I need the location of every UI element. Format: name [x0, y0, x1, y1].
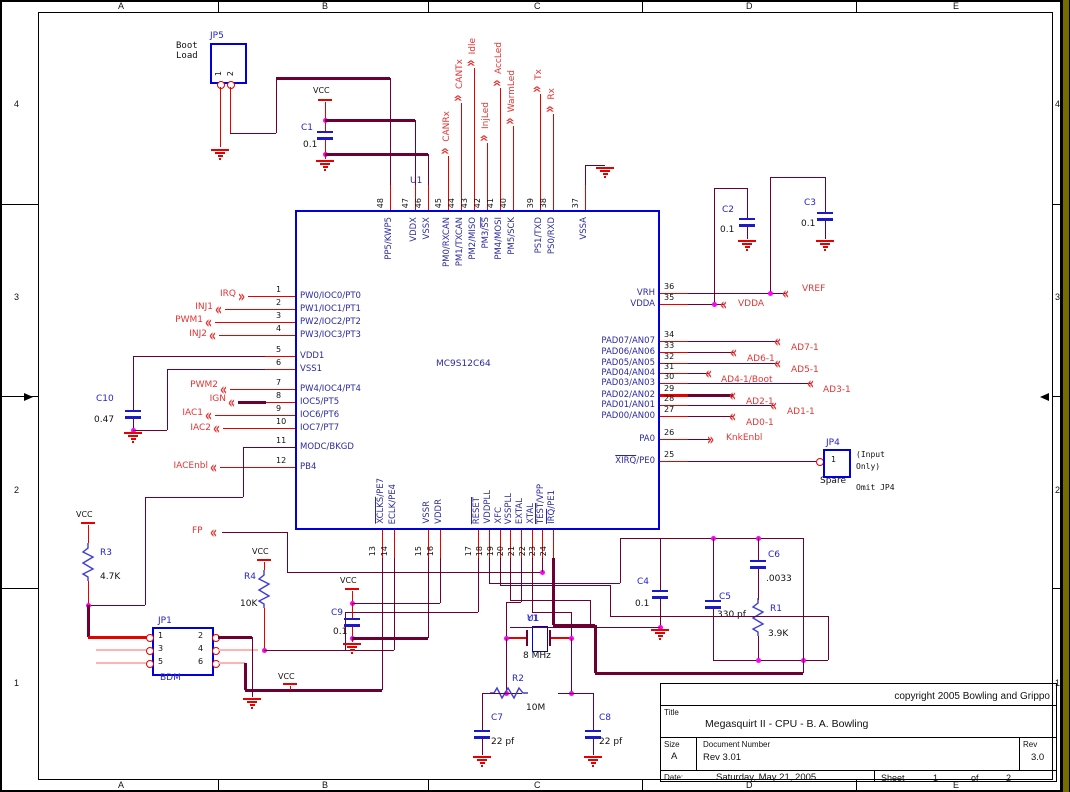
- jp1-pin-number: 3: [158, 645, 163, 653]
- net-chevron: «: [213, 419, 219, 439]
- net-label-InjLed: InjLed: [482, 102, 491, 129]
- schematic-sheet: AABBCCDDEE44332211U1MC9S12C641PW0/IOC0/P…: [0, 0, 1070, 792]
- pin-number: 12: [276, 457, 286, 465]
- jp1-pin-number: 6: [198, 658, 203, 666]
- copyright-text: copyright 2005 Bowling and Grippo: [894, 691, 1050, 702]
- wire: [510, 600, 590, 601]
- capacitor-C10: [125, 410, 141, 412]
- sheet-total: 2: [1006, 773, 1011, 783]
- pin-number: 41: [487, 198, 495, 208]
- net-chevron: «: [215, 300, 221, 320]
- pin-stub: [390, 185, 391, 210]
- jp4-note: Omit JP4: [856, 484, 895, 492]
- border-row-label: 3: [14, 293, 19, 302]
- wire: [825, 177, 826, 212]
- wire: [345, 612, 478, 613]
- net-chevron: «: [705, 364, 711, 384]
- jp1-pin-number: 1: [158, 632, 163, 640]
- ground-symbol: [596, 167, 614, 179]
- net-label-INJ1: INJ1: [150, 303, 213, 312]
- pin-number: 17: [465, 546, 473, 556]
- pin-number: 18: [476, 546, 484, 556]
- pin-name: PW3/IOC3/PT3: [300, 331, 361, 340]
- wire: [88, 581, 89, 605]
- vcc-label: VCC: [252, 548, 269, 556]
- vcc-symbol: [257, 559, 271, 561]
- jp5-pin-number: 2: [227, 71, 235, 76]
- capacitor-value: .0033: [766, 575, 792, 584]
- capacitor-refdes-C9: C9: [331, 609, 343, 618]
- net-chevron: «: [729, 386, 735, 406]
- resistor-refdes-R3: R3: [100, 549, 112, 558]
- wire: [133, 356, 134, 410]
- net-chevron: «: [487, 79, 507, 85]
- jp1-pin-number: 5: [158, 658, 163, 666]
- pin-name: PAD03/AN03: [555, 379, 655, 388]
- pin-name: XTAL: [527, 503, 536, 524]
- net-label-VDDA: VDDA: [738, 300, 764, 309]
- wire: [145, 497, 243, 498]
- pin-number: 42: [474, 198, 482, 208]
- connector-jp4: [823, 449, 851, 478]
- net-chevron: «: [527, 85, 547, 91]
- pin-number: 25: [664, 451, 674, 459]
- border-column-label: B: [322, 781, 328, 790]
- capacitor-C7: [474, 730, 490, 732]
- resistor-value: 10K: [240, 600, 257, 609]
- jp4-note: (Input: [856, 451, 885, 459]
- pin-number: 32: [664, 353, 674, 361]
- net-label-PWM2: PWM2: [148, 381, 218, 390]
- capacitor-refdes-C3: C3: [804, 199, 816, 208]
- pin-stub: [265, 335, 295, 336]
- pin-stub: [553, 185, 554, 210]
- pin-name: IOC5/PT5: [300, 398, 339, 407]
- net-chevron: «: [500, 117, 520, 123]
- pin-number: 8: [276, 392, 281, 400]
- net-label-FP: FP: [192, 527, 203, 536]
- pin-name: PW1/IOC1/PT1: [300, 305, 361, 314]
- wire: [593, 739, 594, 755]
- ground-symbol: [473, 756, 491, 768]
- net-label-AccLed: AccLed: [495, 42, 504, 74]
- capacitor-value: 0.1: [720, 226, 734, 235]
- pin-name: PW0/IOC0/PT0: [300, 292, 361, 301]
- pin-number: 26: [664, 429, 674, 437]
- wire: [571, 693, 593, 694]
- wire: [96, 649, 146, 651]
- pin-name: VDD1: [300, 352, 324, 361]
- vcc-label: VCC: [313, 87, 330, 95]
- wire: [803, 538, 804, 660]
- border-row-label: 2: [14, 486, 19, 495]
- wire: [215, 322, 265, 323]
- wire: [448, 156, 449, 185]
- resistor-value: 4.7K: [100, 573, 120, 582]
- capacitor-value: 0.1: [303, 141, 317, 150]
- net-chevron: «: [210, 458, 216, 478]
- wire: [506, 602, 521, 603]
- pin-name: VSSPLL: [505, 493, 514, 524]
- resistor-value: 3.9K: [768, 630, 788, 639]
- wire: [482, 693, 483, 730]
- wire: [220, 87, 221, 147]
- pin-stub: [265, 369, 295, 370]
- pin-number: 35: [664, 294, 674, 302]
- wire: [440, 558, 441, 603]
- wire: [352, 603, 353, 618]
- resistor-value: 10M: [526, 704, 545, 713]
- pin-number: 36: [664, 283, 674, 291]
- pin-name: PAD01/AN01: [555, 401, 655, 410]
- capacitor-refdes-C1: C1: [301, 124, 313, 133]
- capacitor-refdes-C10: C10: [96, 395, 114, 404]
- schematic-title: Megasquirt II - CPU - B. A. Bowling: [705, 718, 868, 730]
- docnum-value: Rev 3.01: [703, 752, 741, 763]
- pin-stub: [553, 530, 554, 558]
- pin-name: VSS1: [300, 365, 322, 374]
- pin-stub: [265, 428, 295, 429]
- pin-name: PM2/MISO: [469, 217, 478, 260]
- capacitor-value: 22 pf: [491, 738, 514, 747]
- border-arrow-icon: [24, 393, 33, 401]
- border-column-label: E: [953, 781, 959, 790]
- frame-line: [1053, 588, 1061, 589]
- wire: [500, 585, 610, 586]
- wire: [461, 103, 462, 185]
- net-chevron: «: [209, 326, 215, 346]
- wire: [248, 296, 265, 297]
- wire: [88, 636, 152, 639]
- wire: [688, 394, 733, 397]
- pin-number: 27: [664, 406, 674, 414]
- pin-number: 46: [415, 198, 423, 208]
- capacitor-value: 0.1: [333, 628, 347, 637]
- net-label-CANRx: CANRx: [443, 111, 452, 142]
- ground-symbol: [243, 698, 261, 710]
- wire: [549, 630, 551, 646]
- wire: [218, 636, 252, 639]
- pin-name: PM3/SS: [482, 217, 491, 249]
- wire: [243, 447, 295, 448]
- ground-symbol: [316, 160, 334, 172]
- pin-name: VSSR: [423, 501, 432, 524]
- wire: [287, 532, 288, 572]
- vcc-symbol: [283, 683, 297, 685]
- pin-number: 2: [276, 299, 281, 307]
- net-label-IRQ: IRQ: [170, 290, 236, 299]
- connector-pin-circle: [146, 660, 154, 668]
- pin-number: 20: [497, 546, 505, 556]
- wire: [88, 525, 89, 543]
- wire: [167, 369, 168, 430]
- pin-number: 11: [276, 437, 286, 445]
- wire: [558, 693, 571, 694]
- wire: [713, 660, 828, 661]
- wire: [287, 572, 542, 573]
- wire: [714, 188, 715, 304]
- wire: [352, 637, 428, 640]
- capacitor-C3: [817, 212, 833, 214]
- border-column-label: A: [118, 2, 124, 11]
- wire: [133, 356, 265, 357]
- net-label-WarmLed: WarmLed: [508, 70, 517, 112]
- jp4-pin-number: 1: [831, 456, 836, 464]
- wire: [571, 638, 572, 693]
- pin-name: PM4/MOSI: [495, 217, 504, 260]
- capacitor-C2: [739, 218, 755, 220]
- border-row-label: 4: [1055, 100, 1060, 109]
- pin-number: 40: [500, 198, 508, 208]
- wire: [325, 153, 428, 156]
- capacitor-value: 0.47: [94, 416, 114, 425]
- wire: [660, 538, 661, 590]
- jp1-pin-number: 4: [198, 645, 203, 653]
- net-label-Idle: Idle: [469, 38, 478, 54]
- net-label-IGN: IGN: [158, 395, 226, 404]
- crystal-refdes-Y1: Y1: [527, 615, 538, 624]
- wire: [585, 165, 605, 166]
- wire: [758, 569, 759, 600]
- net-chevron: »: [238, 287, 244, 307]
- border-row-label: 1: [14, 679, 19, 688]
- pin-number: 3: [276, 312, 281, 320]
- wire: [513, 126, 514, 185]
- net-label-VREF: VREF: [802, 285, 825, 294]
- pin-name: XFC: [495, 507, 504, 524]
- wire: [688, 363, 778, 364]
- ground-symbol: [816, 240, 834, 252]
- ic-refdes: U1: [410, 177, 422, 186]
- ic-part-number: MC9S12C64: [436, 360, 491, 369]
- connector-pin-circle: [217, 81, 225, 89]
- frame-line: [642, 780, 643, 791]
- wire: [218, 662, 245, 664]
- pin-number: 19: [487, 546, 495, 556]
- pin-name: PM5/SCK: [508, 217, 517, 255]
- pin-number: 37: [572, 198, 580, 208]
- border-row-label: 2: [1055, 486, 1060, 495]
- net-chevron: «: [774, 332, 780, 352]
- wire: [610, 585, 611, 616]
- pin-number: 1: [276, 286, 281, 294]
- pin-name: XIRQ/PE0: [555, 457, 655, 466]
- wire: [660, 599, 661, 627]
- pin-name: PAD07/AN07: [555, 337, 655, 346]
- wire: [167, 369, 265, 370]
- wire: [487, 143, 488, 185]
- wire: [428, 558, 429, 638]
- wire: [390, 78, 391, 185]
- wire: [290, 686, 291, 690]
- wire: [276, 77, 390, 80]
- pin-number: 23: [529, 546, 537, 556]
- wire: [770, 177, 771, 293]
- net-chevron: «: [729, 407, 735, 427]
- net-chevron: «: [770, 396, 776, 416]
- wire: [264, 650, 394, 651]
- frame-line: [428, 780, 429, 791]
- net-label-Rx: Rx: [548, 88, 557, 100]
- connector-pin-circle: [146, 634, 154, 642]
- wire: [244, 663, 247, 690]
- border-column-label: A: [118, 781, 124, 790]
- pin-number: 9: [276, 405, 281, 413]
- wire: [688, 352, 734, 353]
- net-label-AD1-1: AD1-1: [787, 408, 815, 417]
- pin-number: 4: [276, 325, 281, 333]
- wire: [219, 335, 265, 336]
- vcc-symbol: [318, 99, 332, 101]
- ground-symbol: [738, 240, 756, 252]
- jp5-label: Load: [176, 52, 198, 61]
- wire: [238, 401, 266, 404]
- wire: [688, 304, 724, 305]
- wire: [223, 428, 265, 429]
- sheet-label: Sheet: [881, 773, 905, 783]
- pin-number: 29: [664, 385, 674, 393]
- pin-number: 30: [664, 373, 674, 381]
- pin-number: 14: [381, 546, 389, 556]
- wire: [825, 221, 826, 239]
- crystal-value: 8 MHz: [523, 652, 551, 661]
- pin-name: VDDA: [555, 300, 655, 309]
- net-label-IAC2: IAC2: [140, 424, 211, 433]
- jp1-pin-number: 2: [198, 632, 203, 640]
- wire: [264, 608, 265, 650]
- wire: [594, 625, 597, 673]
- wire: [585, 165, 586, 185]
- net-chevron: «: [540, 105, 560, 111]
- capacitor-C4: [652, 590, 668, 592]
- rev-label: Rev: [1023, 740, 1037, 749]
- wire: [552, 558, 555, 625]
- frame-line: [38, 12, 39, 779]
- vcc-label: VCC: [278, 673, 295, 681]
- frame-line: [428, 1, 429, 12]
- net-chevron: «: [807, 374, 813, 394]
- wire: [770, 177, 825, 178]
- title-label: Title: [664, 708, 679, 717]
- frame-line: [2, 588, 38, 589]
- net-label-INJ2: INJ2: [140, 330, 207, 339]
- sheet-of-label: of: [971, 773, 979, 783]
- pin-number: 10: [276, 418, 286, 426]
- scroll-strip: [1062, 0, 1070, 792]
- pin-stub: [265, 402, 295, 403]
- junction-dot: [756, 658, 761, 663]
- wire: [133, 430, 167, 431]
- frame-line: [2, 204, 38, 205]
- wire: [215, 415, 265, 416]
- net-label-IACEnbl: IACEnbl: [118, 462, 208, 471]
- ground-symbol: [584, 756, 602, 768]
- pin-name: PAD06/AN06: [555, 348, 655, 357]
- net-chevron: «: [461, 59, 481, 65]
- junction-dot: [712, 302, 717, 307]
- jp4-name: Spare: [820, 477, 846, 486]
- wire: [230, 87, 231, 133]
- wire: [276, 78, 277, 133]
- wire: [688, 383, 811, 384]
- vcc-symbol: [345, 588, 359, 590]
- net-chevron: «: [210, 523, 216, 543]
- pin-number: 22: [519, 546, 527, 556]
- net-label-Tx: Tx: [535, 69, 544, 80]
- pin-name: PP5/KWP5: [385, 217, 394, 260]
- wire: [506, 602, 507, 638]
- pin-number: 15: [415, 546, 423, 556]
- pin-stub: [440, 530, 441, 558]
- border-row-label: 4: [14, 100, 19, 109]
- pin-stub: [265, 356, 295, 357]
- wire: [593, 693, 594, 730]
- pin-number: 16: [427, 546, 435, 556]
- pin-stub: [265, 389, 295, 390]
- pin-name: PS1/TXD: [535, 217, 544, 253]
- pin-stub: [265, 296, 295, 297]
- pin-number: 43: [461, 198, 469, 208]
- wire: [506, 638, 507, 693]
- connector-refdes: JP1: [158, 617, 172, 626]
- net-chevron: «: [228, 393, 234, 413]
- sheet-number: 1: [933, 773, 938, 783]
- pin-number: 7: [276, 379, 281, 387]
- pin-stub: [265, 309, 295, 310]
- wire: [550, 637, 571, 639]
- border-column-label: C: [534, 2, 541, 11]
- pin-number: 33: [664, 342, 674, 350]
- pin-name: VSSA: [580, 217, 589, 240]
- pin-stub: [394, 530, 395, 558]
- wire: [252, 637, 253, 697]
- vcc-label: VCC: [76, 511, 93, 519]
- net-chevron: »: [707, 430, 713, 450]
- rev-value: 3.0: [1031, 752, 1044, 763]
- pin-name: PAD02/AN02: [555, 391, 655, 400]
- border-column-label: E: [953, 2, 959, 11]
- pin-name: IRQ/PE1: [548, 490, 557, 524]
- frame-line: [856, 1, 857, 12]
- date-label: Date:: [664, 773, 683, 782]
- capacitor-refdes-C5: C5: [719, 593, 731, 602]
- pin-name: PA0: [555, 435, 655, 444]
- date-value: Saturday, May 21, 2005: [716, 772, 816, 783]
- pin-stub: [660, 461, 688, 462]
- connector-jp5: [210, 43, 247, 84]
- wire: [553, 624, 595, 627]
- resistor-refdes-R1: R1: [770, 605, 782, 614]
- wire: [688, 461, 816, 462]
- wire: [713, 538, 714, 600]
- wire: [482, 739, 483, 755]
- pin-stub: [660, 439, 688, 440]
- size-value: A: [671, 751, 677, 762]
- pin-name: IOC7/PT7: [300, 424, 339, 433]
- wire: [325, 119, 415, 122]
- resistor-refdes-R4: R4: [244, 573, 256, 582]
- wire: [758, 636, 759, 660]
- border-column-label: D: [746, 2, 753, 11]
- pin-number: 34: [664, 331, 674, 339]
- frame-line: [1053, 204, 1061, 205]
- pin-name: PM1/TXCAN: [456, 217, 465, 266]
- pin-number: 44: [448, 198, 456, 208]
- frame-line: [38, 12, 1053, 13]
- net-label-AD5-1: AD5-1: [791, 366, 819, 375]
- pin-stub: [265, 322, 295, 323]
- wire: [828, 616, 829, 660]
